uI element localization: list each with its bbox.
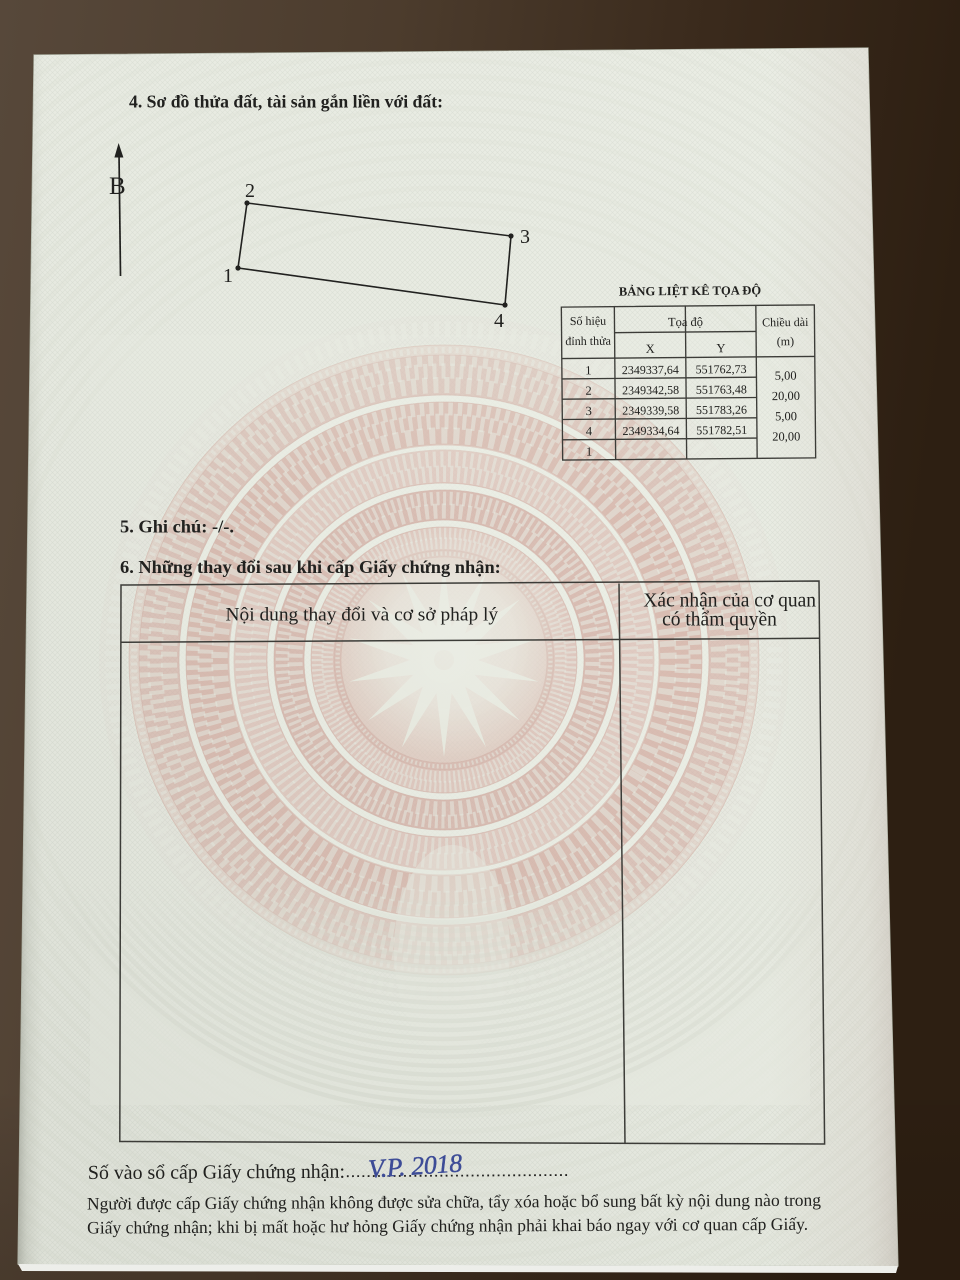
svg-text:có thẩm quyền: có thẩm quyền [662,610,777,631]
svg-text:551762,73: 551762,73 [696,362,747,376]
svg-text:Chiều dài: Chiều dài [762,315,809,329]
svg-text:X: X [646,342,655,356]
svg-text:5,00: 5,00 [775,369,797,383]
svg-text:Tọa độ: Tọa độ [668,315,703,329]
svg-text:3: 3 [520,226,530,248]
svg-text:2349337,64: 2349337,64 [622,363,679,377]
svg-text:Xác nhận của cơ quan: Xác nhận của cơ quan [643,591,816,612]
svg-text:5,00: 5,00 [775,409,797,423]
svg-text:BẢNG LIỆT KÊ TỌA ĐỘ: BẢNG LIỆT KÊ TỌA ĐỘ [619,283,762,298]
svg-text:Người được cấp Giấy chứng nhận: Người được cấp Giấy chứng nhận không đượ… [87,1190,821,1214]
svg-text:4: 4 [494,310,504,332]
svg-text:2349342,58: 2349342,58 [622,383,679,397]
svg-text:đỉnh thửa: đỉnh thửa [565,334,611,348]
svg-text:1: 1 [585,363,591,377]
svg-text:1: 1 [586,445,592,459]
svg-text:1: 1 [223,265,233,287]
svg-text:4. Sơ đồ thửa đất, tài sản gắn: 4. Sơ đồ thửa đất, tài sản gắn liền với … [129,92,443,112]
svg-text:Y: Y [716,341,725,355]
svg-text:2: 2 [245,180,255,202]
svg-text:20,00: 20,00 [772,429,800,443]
svg-text:551782,51: 551782,51 [696,423,747,437]
svg-text:6. Những thay đổi sau khi cấp: 6. Những thay đổi sau khi cấp Giấy chứng… [120,557,501,577]
svg-text:4: 4 [586,424,593,438]
svg-text:Nội dung thay đổi và cơ sở phá: Nội dung thay đổi và cơ sở pháp lý [226,604,499,625]
svg-text:551763,48: 551763,48 [696,382,747,396]
svg-text:2349334,64: 2349334,64 [622,423,679,437]
svg-text:2: 2 [585,384,591,398]
svg-text:5. Ghi chú: -/-.: 5. Ghi chú: -/-. [120,517,234,537]
svg-text:551783,26: 551783,26 [696,403,747,417]
svg-text:Số vào sổ cấp Giấy chứng nhận:: Số vào sổ cấp Giấy chứng nhận: [88,1161,345,1184]
svg-text:(m): (m) [777,334,794,348]
svg-text:2349339,58: 2349339,58 [622,403,679,417]
svg-text:B: B [109,173,126,200]
svg-text:Số hiệu: Số hiệu [570,314,606,328]
svg-text:3: 3 [586,404,592,418]
svg-text:20,00: 20,00 [772,389,800,403]
svg-text:Giấy chứng nhận; khi bị mất ho: Giấy chứng nhận; khi bị mất hoặc hư hỏng… [87,1214,808,1238]
